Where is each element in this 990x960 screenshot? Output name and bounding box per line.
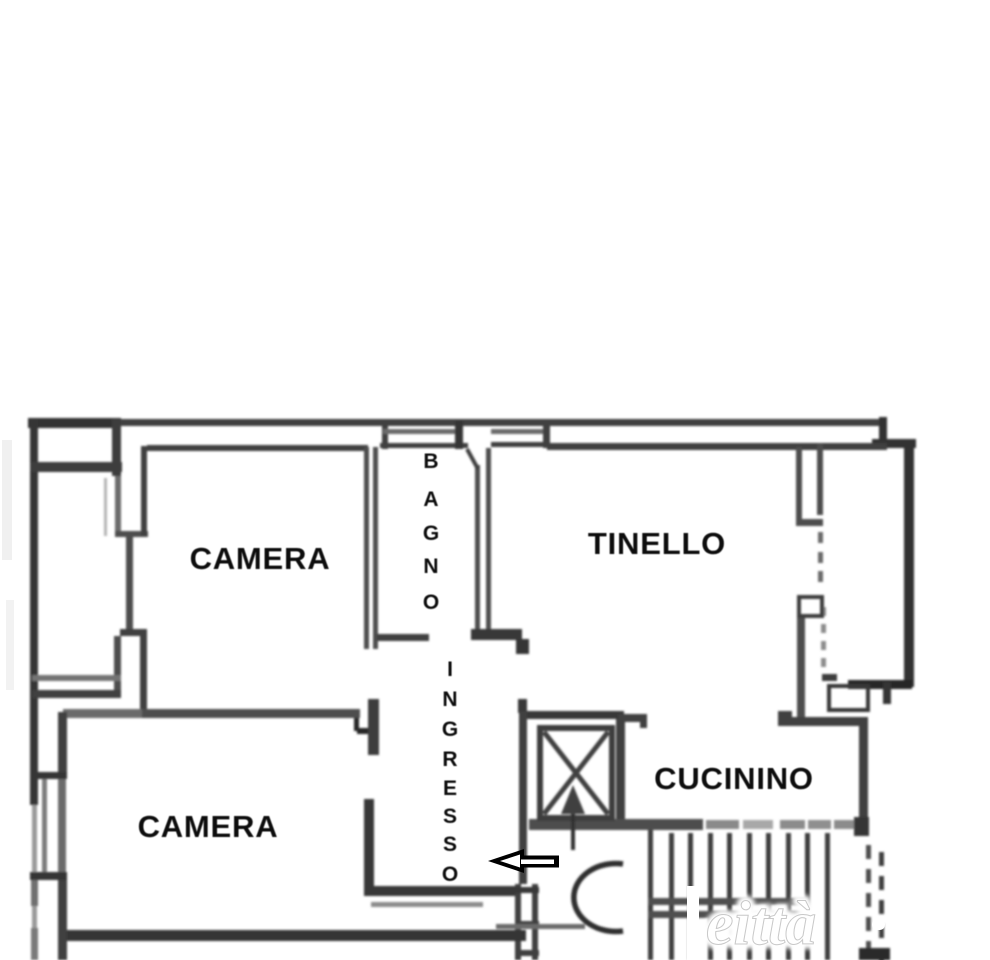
svg-text:B: B — [423, 450, 438, 473]
svg-text:G: G — [423, 522, 439, 545]
svg-text:S: S — [443, 833, 457, 856]
svg-text:eittà: eittà — [706, 890, 816, 958]
svg-text:CAMERA: CAMERA — [138, 809, 279, 844]
svg-text:N: N — [442, 688, 457, 711]
svg-text:G: G — [442, 718, 458, 741]
svg-text:E: E — [443, 777, 457, 800]
svg-text:TINELLO: TINELLO — [588, 526, 726, 561]
svg-text:CUCININO: CUCININO — [654, 761, 814, 796]
svg-text:I: I — [447, 658, 453, 681]
svg-text:N: N — [423, 555, 438, 578]
svg-text:A: A — [423, 488, 438, 511]
svg-text:S: S — [443, 805, 457, 828]
svg-text:CAMERA: CAMERA — [190, 541, 331, 576]
svg-text:R: R — [442, 748, 457, 771]
svg-text:O: O — [442, 863, 458, 886]
svg-text:O: O — [423, 591, 439, 614]
